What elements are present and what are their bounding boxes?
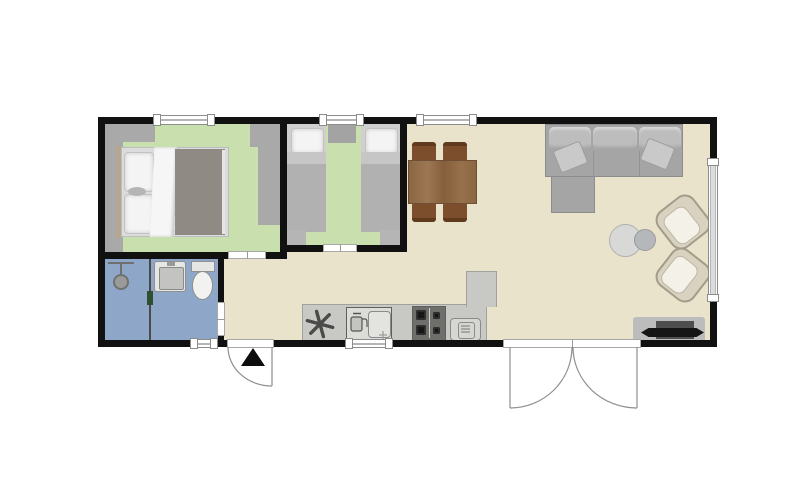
dining-chair-4 [443,202,467,222]
duvet [287,164,326,232]
window-cap [345,338,353,349]
window-cap [356,114,364,126]
burner-bl [416,325,426,335]
basin-tap [167,262,175,266]
dining-table [408,160,477,204]
pillow [365,128,398,154]
washbasin [154,261,186,292]
dining-chair-1 [412,142,436,162]
sheet-band [361,152,400,164]
window-top-dining [418,115,475,125]
door-tick [217,319,225,320]
window-top-bedroom-twin [321,115,362,125]
sink-basin [368,311,391,338]
window-bottom-kitchen [347,339,391,348]
window-cap [707,158,719,166]
wall-bedroom2-living [400,117,407,252]
wardrobe-top-left [123,124,155,142]
back-cushion-2 [593,127,637,149]
window-pane [420,119,473,121]
foot-rug-left [287,230,306,245]
entrance-door-frame [227,339,274,348]
window-cap [210,338,218,349]
french-door-swing-icon [510,347,637,408]
bathroom-door [217,302,225,336]
kitchen-counter-return [466,271,497,307]
seat-divider-1 [593,151,594,177]
single-bed-right [361,124,400,232]
armchair-cushion [658,253,701,297]
stove-divider [429,308,430,338]
microwave [450,318,481,341]
dining-chair-2 [443,142,467,162]
entrance-arrow-icon [241,348,265,366]
toilet-bowl [192,271,213,300]
duvet [175,149,225,235]
foot-rug-right [380,230,400,245]
window-cap [207,114,215,126]
burner-tl [416,310,426,320]
pillow [291,128,324,154]
window-cap [385,338,393,349]
window-cap [319,114,327,126]
window-bottom-bathroom [192,339,216,348]
coffee-table-small [634,229,656,251]
bedroom-double-door [228,251,266,259]
window-cap [707,294,719,302]
shower-divider-hinge [147,291,153,305]
single-bed-left [287,124,326,232]
burner-tr [433,312,440,319]
door-tick [340,244,341,252]
duvet-foot-fold [222,150,225,234]
stove [412,306,446,341]
wardrobe-top-right [250,124,280,147]
double-bed [116,146,229,238]
wall-bedrooms-divider [280,117,287,259]
seat-divider-2 [639,151,640,177]
pillow-seam [128,187,146,196]
bedroom-twin-door [323,244,357,252]
microwave-door [458,322,475,339]
window-pane [710,164,716,296]
basin [159,267,184,290]
wall-left [98,117,105,347]
french-door-frame [503,339,641,348]
floor-plan-canvas [0,0,800,495]
pillow-upper [124,152,154,192]
wardrobe-right [258,147,280,225]
window-cap [153,114,161,126]
window-pane [157,119,211,121]
tv-screen [641,328,704,337]
window-cap [416,114,424,126]
corner-sofa [545,124,683,177]
window-pane [323,119,360,121]
burner-br [433,327,440,334]
sheet-band [287,152,326,164]
french-door-middle [572,339,573,348]
kitchen-sink-unit [346,307,392,340]
duvet [361,164,400,232]
nightstand [328,124,356,143]
sofa-chaise [551,177,595,213]
dining-chair-3 [412,202,436,222]
window-top-bedroom-double [155,115,213,125]
door-tick [247,251,248,259]
window-right-living [708,160,718,300]
window-cap [469,114,477,126]
window-pane [349,343,389,345]
window-cap [190,338,198,349]
